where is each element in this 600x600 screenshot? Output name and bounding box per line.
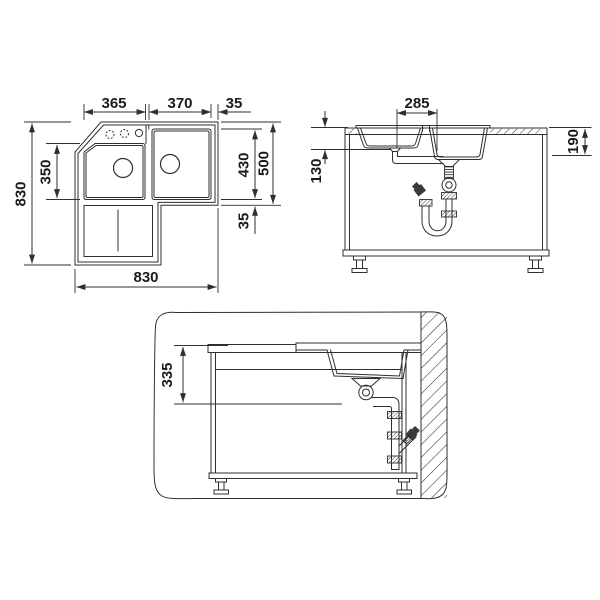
wall-hatch [421, 312, 447, 498]
plan-dim-section-depth: 500 [256, 151, 273, 176]
counter-hatch-right [491, 129, 543, 134]
plan-dim-overall-width: 830 [133, 269, 158, 286]
front-view: 285 130 190 [308, 95, 592, 273]
side-dimensions: 335 [159, 346, 342, 405]
right-drain-icon [161, 155, 180, 174]
counter-hatch-left [346, 129, 357, 134]
side-dim-drain-height: 335 [159, 362, 176, 387]
plan-dim-bowl-left-depth: 350 [38, 159, 55, 184]
trap-union-icon [442, 178, 456, 192]
front-cabinet [343, 128, 549, 256]
side-sink-rim [296, 343, 421, 353]
side-bowl-inner [331, 350, 405, 376]
technical-drawing-page: 365 370 35 830 350 430 500 35 830 [0, 0, 600, 600]
side-plumbing [352, 379, 420, 470]
plan-dim-overall-depth: 830 [13, 181, 30, 206]
plan-dim-bowl-right-width: 370 [167, 95, 192, 112]
front-dim-drain-spacing: 285 [404, 95, 429, 112]
sink-technical-drawing: 365 370 35 830 350 430 500 35 830 [0, 0, 600, 600]
plan-right-bowl-inner [154, 131, 209, 198]
front-plumbing [390, 148, 460, 236]
front-feet [352, 256, 543, 273]
front-left-bowl-inner [361, 128, 421, 146]
plan-dim-bowl-left-width: 365 [101, 95, 126, 112]
front-dim-bowl-left-depth: 130 [308, 158, 325, 183]
side-feet [214, 479, 412, 495]
front-dim-bowl-right-depth: 190 [565, 129, 582, 154]
tailpiece-ribbed [445, 167, 454, 179]
plan-divider-line [146, 125, 149, 144]
plan-dim-bowl-right-depth: 430 [236, 152, 253, 177]
left-drain-icon [114, 159, 133, 178]
faucet-hole-icon [135, 129, 142, 136]
side-view: 335 [154, 312, 447, 499]
plan-view: 365 370 35 830 350 430 500 35 830 [13, 95, 282, 293]
plan-dim-right-edge: 35 [226, 95, 243, 112]
faucet-hole-knockout-icon [106, 131, 114, 139]
front-right-bowl [430, 128, 488, 160]
detail-blob-outline [154, 312, 447, 499]
front-right-bowl-inner [433, 128, 485, 157]
faucet-hole-knockout-icon [121, 130, 129, 138]
plan-dim-bottom-edge: 35 [236, 213, 253, 230]
